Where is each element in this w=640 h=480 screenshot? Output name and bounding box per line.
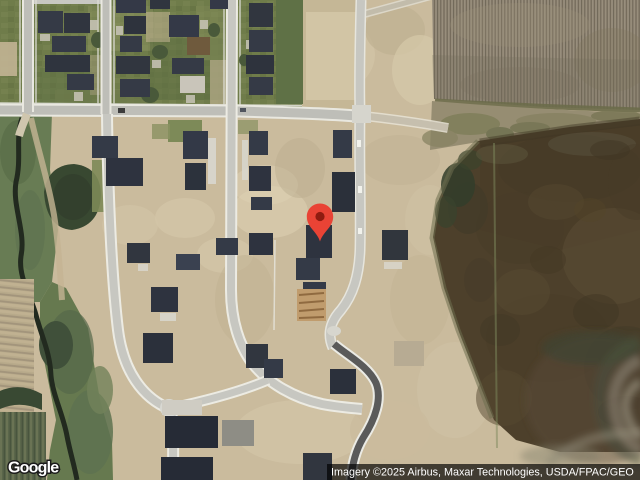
svg-text:Google: Google — [8, 460, 59, 477]
svg-text:Imagery ©2025 Airbus, Maxar Te: Imagery ©2025 Airbus, Maxar Technologies… — [331, 467, 634, 479]
